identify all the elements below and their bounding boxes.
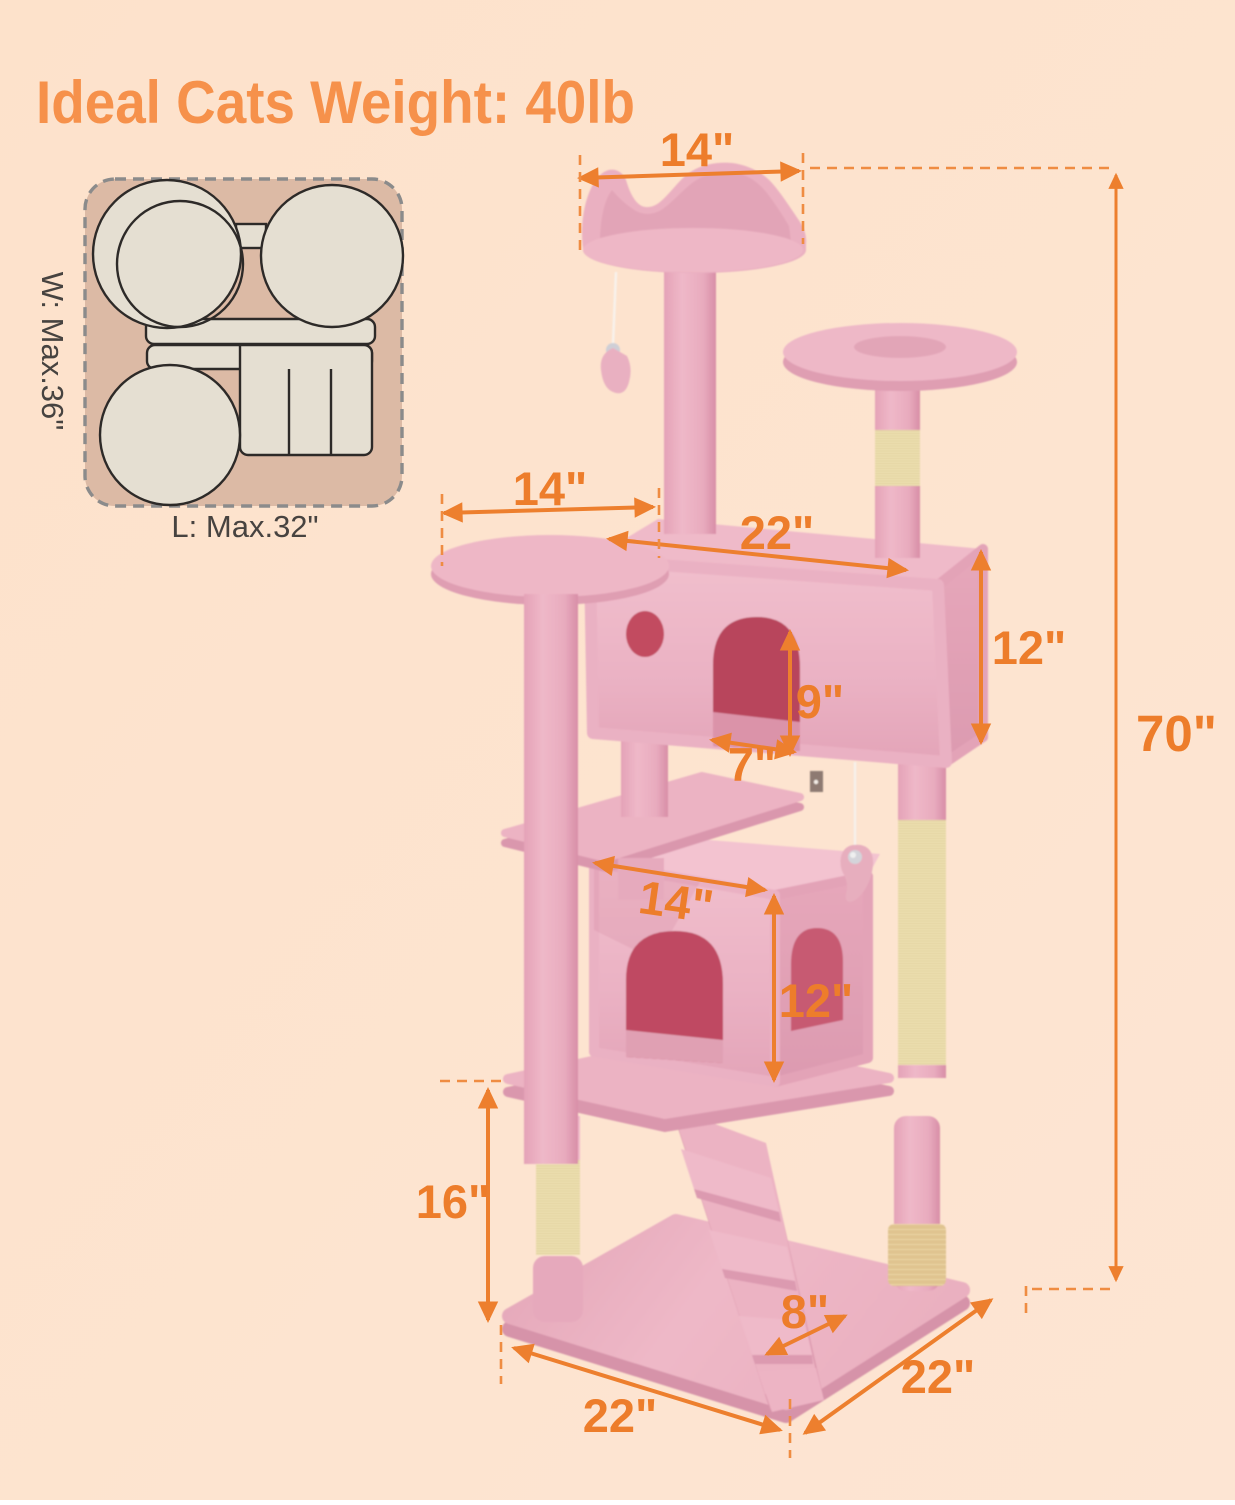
svg-text:L: Max.32": L: Max.32" xyxy=(171,509,318,544)
svg-text:16": 16" xyxy=(416,1175,491,1228)
svg-text:12": 12" xyxy=(992,621,1067,674)
svg-text:22": 22" xyxy=(740,506,815,559)
svg-text:14": 14" xyxy=(636,870,717,933)
svg-text:W: Max.36": W: Max.36" xyxy=(35,272,70,431)
svg-text:22": 22" xyxy=(583,1389,658,1442)
svg-text:7": 7" xyxy=(728,738,776,791)
svg-text:Ideal Cats Weight: 40lb: Ideal Cats Weight: 40lb xyxy=(36,69,635,136)
svg-text:14": 14" xyxy=(513,462,588,515)
svg-text:70": 70" xyxy=(1136,705,1217,762)
svg-text:9": 9" xyxy=(796,675,844,728)
svg-text:8": 8" xyxy=(781,1285,829,1338)
svg-text:14": 14" xyxy=(660,123,735,176)
svg-text:12": 12" xyxy=(779,974,854,1027)
svg-text:22": 22" xyxy=(901,1350,976,1403)
